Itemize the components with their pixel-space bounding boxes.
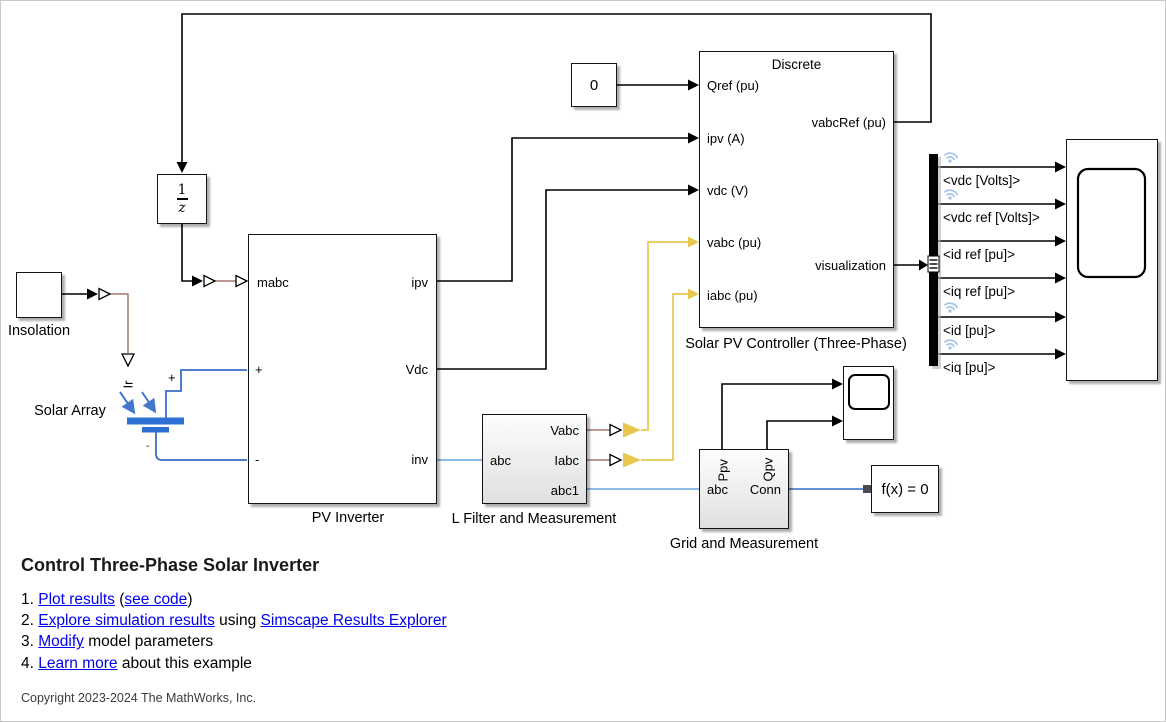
- solar-array-caption: Solar Array: [24, 403, 116, 419]
- scope-screen-icon: [1067, 140, 1156, 379]
- port-label-vabc-out: Vabc: [550, 423, 579, 438]
- instruction-list: 1. Plot results (see code) 2. Explore si…: [21, 589, 447, 674]
- item-number: 1.: [21, 591, 34, 608]
- port-label-vabc-pu: vabc (pu): [707, 235, 761, 250]
- modify-link[interactable]: Modify: [38, 633, 84, 650]
- model-title: Control Three-Phase Solar Inverter: [21, 555, 319, 576]
- wire-ir: [110, 294, 128, 353]
- port-label-grid-abc: abc: [707, 482, 728, 497]
- ir-port-label: Ir: [121, 369, 136, 389]
- port-label-abc1: abc1: [551, 483, 579, 498]
- controller-caption: Solar PV Controller (Three-Phase): [666, 336, 926, 352]
- see-code-link[interactable]: see code: [124, 591, 187, 608]
- logging-badge-icon: [944, 152, 958, 164]
- solver-configuration-block[interactable]: f(x) = 0: [871, 465, 939, 513]
- port-label-vdc-v: vdc (V): [707, 183, 748, 198]
- unit-delay-denominator: z: [178, 201, 185, 215]
- controller-mode-badge: Discrete: [700, 57, 893, 72]
- insolation-caption: Insolation: [1, 323, 77, 339]
- scope-screen-icon: [844, 367, 892, 438]
- arrowheads: [87, 80, 1066, 427]
- sun-ray-icon: [120, 392, 133, 411]
- port-label-ppv: Ppv: [716, 452, 731, 482]
- port-label-ipv: ipv: [411, 275, 428, 290]
- bus-signal-label-vdcref: <vdc ref [Volts]>: [943, 210, 1040, 225]
- port-label-minus: -: [255, 452, 259, 467]
- bus-signal-label-iq: <iq [pu]>: [943, 360, 996, 375]
- item-number: 4.: [21, 655, 34, 672]
- wire-delay-to-mabc: [182, 224, 192, 281]
- sun-ray-icon: [142, 392, 154, 410]
- port-label-qpv: Qpv: [761, 452, 776, 482]
- pv-inverter-block[interactable]: mabc + - ipv Vdc inv: [248, 234, 437, 504]
- wire-vdc: [437, 190, 688, 369]
- main-scope-block[interactable]: [1066, 139, 1158, 381]
- plot-results-link[interactable]: Plot results: [38, 591, 115, 608]
- wire-ipv: [437, 138, 688, 281]
- wire-ppv: [722, 384, 832, 449]
- list-item: 2. Explore simulation results using Sims…: [21, 610, 447, 631]
- port-label-ipv-a: ipv (A): [707, 131, 745, 146]
- solver-port-square: [863, 485, 871, 493]
- bus-signal-label-iqref: <iq ref [pu]>: [943, 284, 1015, 299]
- item-number: 3.: [21, 633, 34, 650]
- bus-signal-label-vdc: <vdc [Volts]>: [943, 173, 1020, 188]
- port-label-mabc: mabc: [257, 275, 289, 290]
- pq-scope-block[interactable]: [843, 366, 894, 440]
- logging-badge-icon: [944, 302, 958, 314]
- solar-cell-top-plate: [127, 418, 184, 425]
- port-label-conn: Conn: [750, 482, 781, 497]
- copyright-text: Copyright 2023-2024 The MathWorks, Inc.: [21, 691, 256, 705]
- static-text: ): [187, 591, 192, 608]
- port-label-vdc: Vdc: [406, 362, 428, 377]
- port-label-plus: +: [255, 362, 263, 377]
- solar-minus-wire: [156, 432, 247, 460]
- list-item: 3. Modify model parameters: [21, 631, 447, 652]
- solar-plus-wire: [166, 370, 247, 418]
- static-text: (: [115, 591, 124, 608]
- port-label-qref: Qref (pu): [707, 78, 759, 93]
- learn-more-link[interactable]: Learn more: [38, 655, 117, 672]
- solar-pv-controller-block[interactable]: Discrete Qref (pu) ipv (A) vdc (V) vabc …: [699, 51, 894, 328]
- item-number: 2.: [21, 612, 34, 629]
- port-label-abc: abc: [490, 453, 511, 468]
- solar-plus-label: +: [168, 370, 176, 385]
- port-label-iabc-pu: iabc (pu): [707, 288, 758, 303]
- static-text: about this example: [118, 655, 252, 672]
- signal-wires: [62, 14, 1055, 449]
- port-label-vabcref: vabcRef (pu): [812, 115, 886, 130]
- bus-creator[interactable]: [928, 154, 941, 369]
- l-filter-caption: L Filter and Measurement: [444, 511, 624, 527]
- solar-minus-label: -: [146, 439, 149, 454]
- solver-label: f(x) = 0: [872, 466, 938, 512]
- solar-cell-bottom-plate: [142, 427, 169, 433]
- solar-array-symbol[interactable]: [120, 370, 247, 460]
- constant-value: 0: [572, 64, 616, 106]
- logging-badge-icon: [944, 189, 958, 201]
- static-text: using: [215, 612, 261, 629]
- port-label-inv: inv: [411, 452, 428, 467]
- explore-results-link[interactable]: Explore simulation results: [38, 612, 215, 629]
- port-label-iabc-out: Iabc: [554, 453, 579, 468]
- grid-measurement-caption: Grid and Measurement: [659, 536, 829, 552]
- logging-badge-icon: [944, 339, 958, 351]
- grid-measurement-block[interactable]: Ppv Qpv abc Conn: [699, 449, 789, 529]
- wire-qpv: [767, 421, 832, 449]
- list-item: 4. Learn more about this example: [21, 653, 447, 674]
- simscape-explorer-link[interactable]: Simscape Results Explorer: [261, 612, 447, 629]
- yellow-triangles: [623, 237, 699, 468]
- static-text: model parameters: [84, 633, 213, 650]
- l-filter-block[interactable]: abc Vabc Iabc abc1: [482, 414, 587, 504]
- list-item: 1. Plot results (see code): [21, 589, 447, 610]
- port-label-visualization: visualization: [815, 258, 886, 273]
- bus-signal-label-id: <id [pu]>: [943, 323, 996, 338]
- unit-delay-numerator: 1: [178, 183, 187, 197]
- constant-block[interactable]: 0: [571, 63, 617, 107]
- unit-delay-fraction: 1 z: [157, 174, 207, 224]
- bus-signal-label-idref: <id ref [pu]>: [943, 247, 1015, 262]
- simulink-model-canvas: 1 z 0 mabc + - ipv Vdc inv Discrete Qref…: [0, 0, 1166, 722]
- insolation-block[interactable]: [16, 272, 62, 318]
- pv-inverter-caption: PV Inverter: [282, 510, 414, 526]
